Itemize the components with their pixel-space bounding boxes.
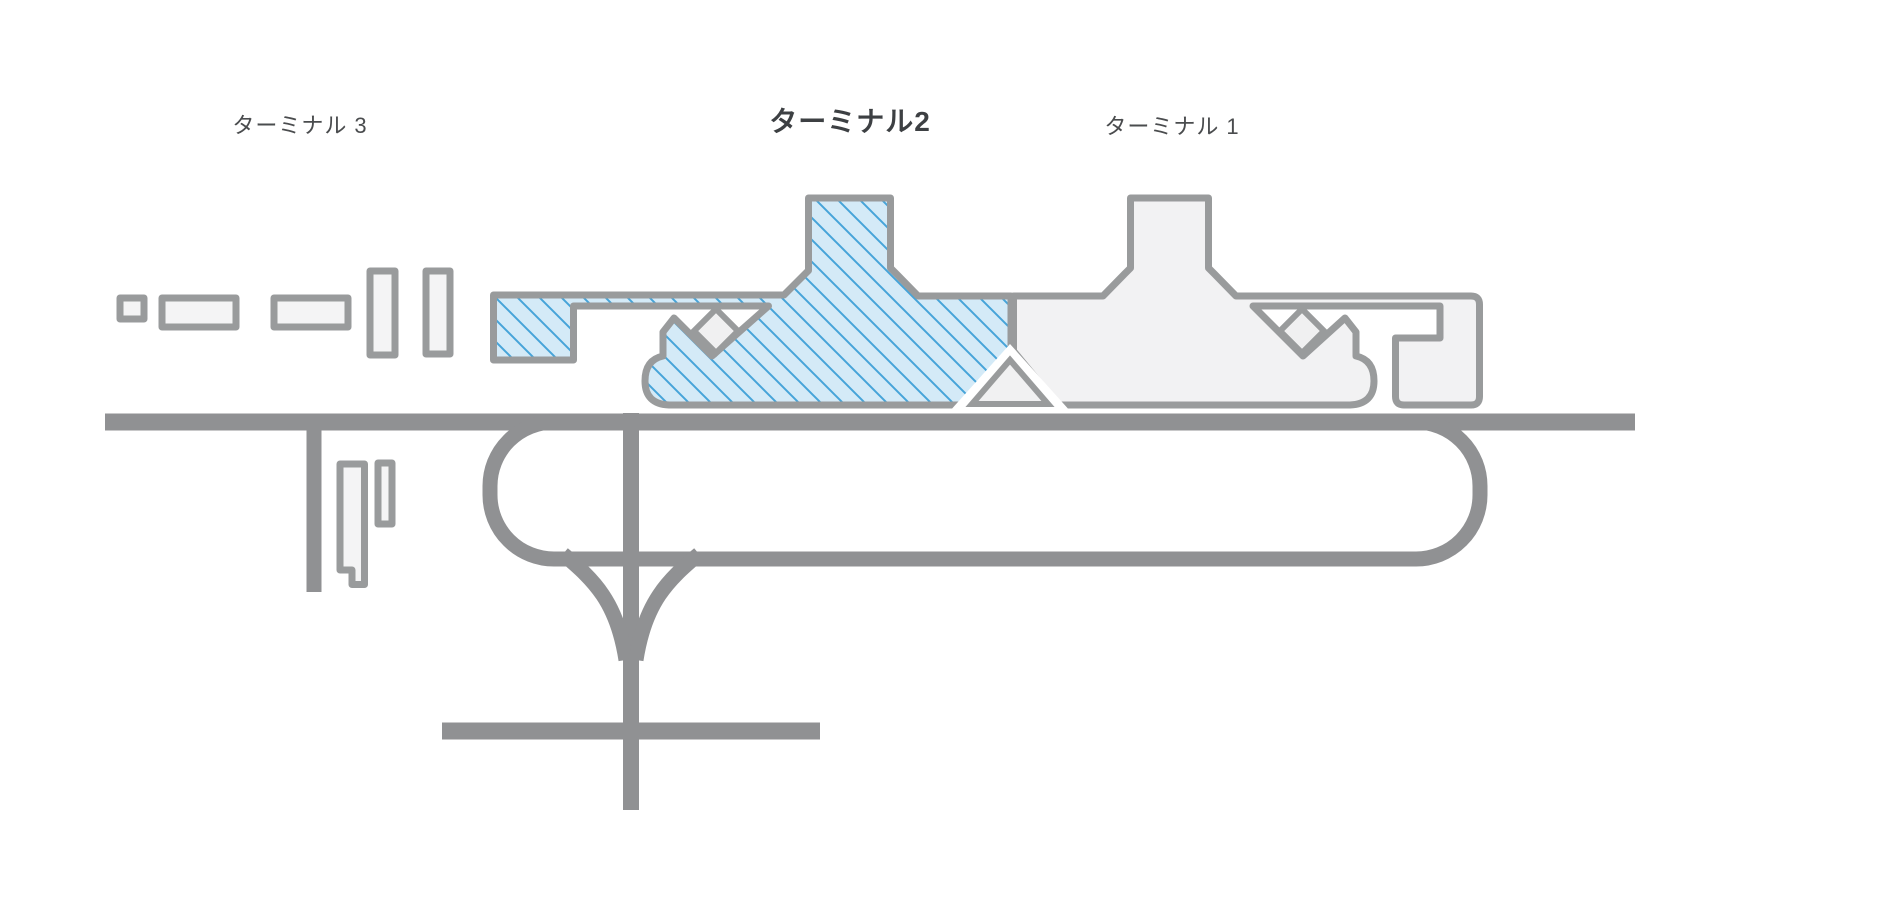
- terminal1-building-shape[interactable]: [1014, 198, 1480, 405]
- terminal3-annex-building[interactable]: [340, 464, 365, 585]
- terminal2-building-shape[interactable]: [494, 198, 1012, 405]
- terminal-3-label[interactable]: ターミナル 3: [232, 108, 367, 140]
- terminal-2-label[interactable]: ターミナル2: [769, 100, 931, 140]
- ramp-left: [563, 554, 626, 660]
- road-network: [105, 413, 1635, 810]
- airport-map-canvas: ターミナル 3 ターミナル2 ターミナル 1: [0, 0, 1900, 900]
- terminal3-annex-small[interactable]: [378, 463, 392, 524]
- terminal3-building-3[interactable]: [274, 298, 348, 327]
- terminal3-building-4[interactable]: [370, 271, 395, 355]
- terminal-1-label[interactable]: ターミナル 1: [1104, 109, 1239, 141]
- ramp-right: [636, 554, 699, 660]
- terminal3-building-1[interactable]: [120, 298, 144, 319]
- terminal3-building-2[interactable]: [162, 298, 236, 327]
- terminal3-building-5[interactable]: [426, 271, 450, 354]
